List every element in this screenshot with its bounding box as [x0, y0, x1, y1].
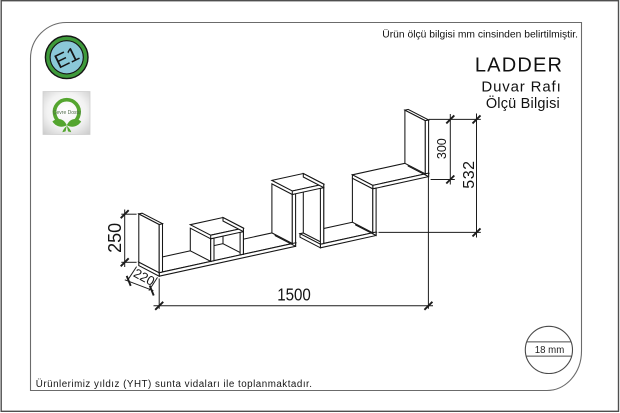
svg-text:Ölçü Bilgisi: Ölçü Bilgisi: [486, 94, 560, 112]
svg-text:Ürün ölçü bilgisi mm cinsinden: Ürün ölçü bilgisi mm cinsinden belirtilm…: [382, 29, 578, 41]
svg-text:LADDER: LADDER: [475, 54, 563, 76]
svg-text:Duvar Rafı: Duvar Rafı: [481, 79, 561, 96]
svg-text:Ürünlerimiz yıldız (YHT) sunta: Ürünlerimiz yıldız (YHT) sunta vidaları …: [36, 379, 313, 390]
svg-text:1500: 1500: [277, 284, 311, 305]
svg-text:300: 300: [435, 138, 449, 159]
svg-text:532: 532: [461, 160, 478, 188]
svg-text:250: 250: [105, 223, 125, 253]
svg-text:18 mm: 18 mm: [535, 345, 565, 356]
svg-text:Çevre Dostu: Çevre Dostu: [53, 110, 81, 116]
